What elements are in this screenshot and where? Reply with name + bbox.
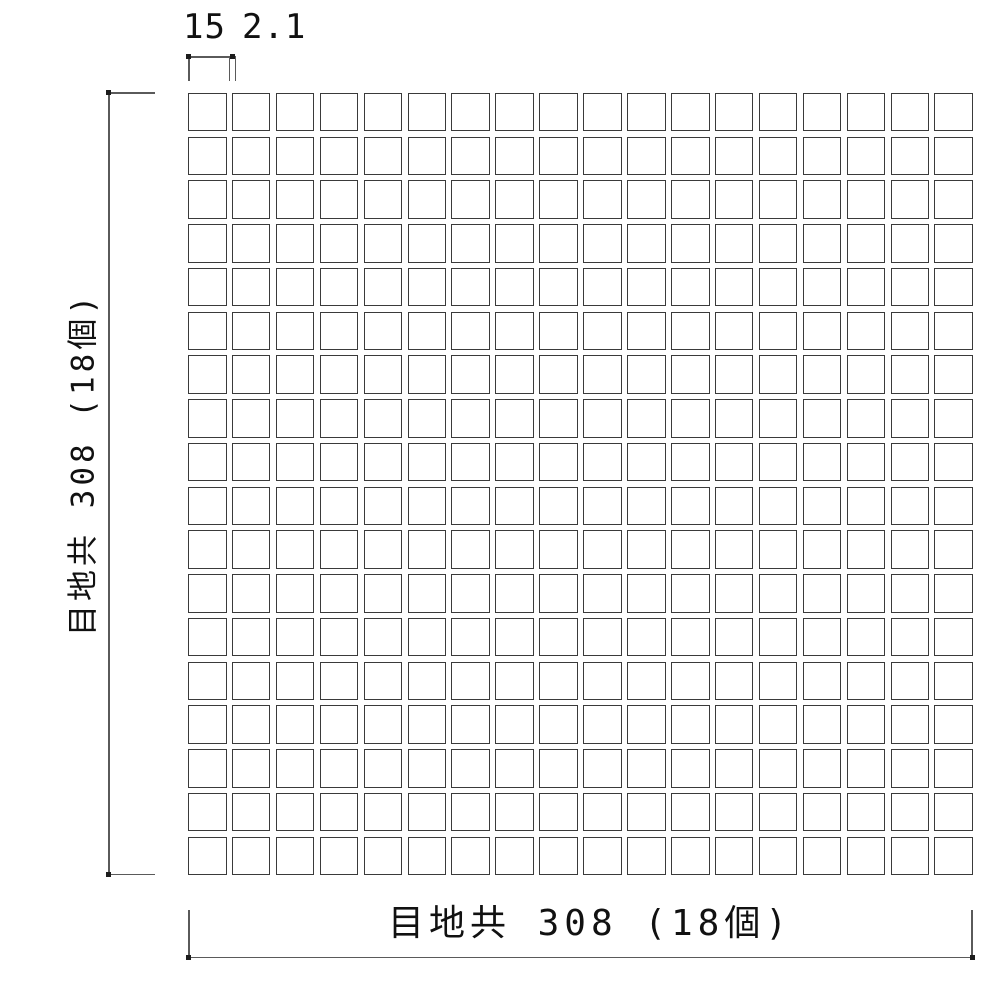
tile xyxy=(627,705,666,743)
tile xyxy=(627,180,666,218)
tile xyxy=(583,443,622,481)
tile xyxy=(847,705,886,743)
tile xyxy=(276,705,315,743)
tile xyxy=(803,574,842,612)
tile xyxy=(495,443,534,481)
tile xyxy=(759,530,798,568)
tile xyxy=(671,224,710,262)
tile xyxy=(364,837,403,875)
tile xyxy=(451,268,490,306)
tile xyxy=(539,268,578,306)
tile xyxy=(276,574,315,612)
tile xyxy=(715,399,754,437)
tile xyxy=(803,224,842,262)
tile xyxy=(891,399,930,437)
tile xyxy=(715,355,754,393)
tile xyxy=(188,618,227,656)
tile xyxy=(539,793,578,831)
tile xyxy=(276,618,315,656)
tile xyxy=(232,312,271,350)
tile xyxy=(934,180,973,218)
tile xyxy=(671,399,710,437)
left-dimension-line xyxy=(108,92,110,875)
tile xyxy=(495,662,534,700)
top-dimension-endpoint-dot-right xyxy=(230,54,235,59)
tile xyxy=(715,793,754,831)
tile xyxy=(934,443,973,481)
tile xyxy=(320,355,359,393)
tile xyxy=(671,749,710,787)
tile xyxy=(934,224,973,262)
tile xyxy=(803,705,842,743)
left-dimension-tick-top xyxy=(108,92,155,94)
tile xyxy=(583,137,622,175)
tile xyxy=(803,662,842,700)
tile xyxy=(715,530,754,568)
tile xyxy=(715,749,754,787)
tile xyxy=(671,793,710,831)
tile xyxy=(276,749,315,787)
tile xyxy=(364,137,403,175)
tile xyxy=(408,137,447,175)
tile xyxy=(759,705,798,743)
tile xyxy=(627,355,666,393)
tile xyxy=(495,574,534,612)
tile xyxy=(408,93,447,131)
tile xyxy=(627,443,666,481)
tile xyxy=(495,487,534,525)
tile xyxy=(232,180,271,218)
tile xyxy=(891,268,930,306)
tile xyxy=(891,837,930,875)
tile xyxy=(891,705,930,743)
tile xyxy=(408,793,447,831)
tile xyxy=(495,224,534,262)
tile xyxy=(188,443,227,481)
tile xyxy=(891,93,930,131)
tile xyxy=(934,749,973,787)
tile xyxy=(671,618,710,656)
tile xyxy=(408,749,447,787)
tile xyxy=(891,224,930,262)
tile xyxy=(364,705,403,743)
tile xyxy=(495,93,534,131)
tile xyxy=(583,530,622,568)
tile xyxy=(759,662,798,700)
tile xyxy=(759,487,798,525)
tile xyxy=(671,137,710,175)
tile xyxy=(408,268,447,306)
tile xyxy=(891,749,930,787)
tile xyxy=(803,180,842,218)
tile xyxy=(759,574,798,612)
tile xyxy=(188,224,227,262)
tile xyxy=(451,399,490,437)
tile xyxy=(715,224,754,262)
tile xyxy=(847,312,886,350)
tile xyxy=(320,268,359,306)
tile xyxy=(934,618,973,656)
tile xyxy=(188,137,227,175)
tile xyxy=(627,574,666,612)
tile xyxy=(320,749,359,787)
tile xyxy=(408,399,447,437)
tile xyxy=(188,705,227,743)
tile xyxy=(495,618,534,656)
tile xyxy=(364,662,403,700)
tile xyxy=(451,312,490,350)
tile xyxy=(364,487,403,525)
tile xyxy=(539,399,578,437)
bottom-dimension-tick-right xyxy=(971,910,973,958)
tile xyxy=(364,93,403,131)
tile xyxy=(276,312,315,350)
tile xyxy=(320,487,359,525)
tile xyxy=(627,93,666,131)
tile xyxy=(276,662,315,700)
tile xyxy=(671,443,710,481)
tile xyxy=(671,180,710,218)
top-dimension-tick-left xyxy=(188,56,190,81)
tile xyxy=(408,662,447,700)
tile xyxy=(934,793,973,831)
tile xyxy=(715,618,754,656)
tile xyxy=(451,355,490,393)
tile xyxy=(934,837,973,875)
top-dimension-endpoint-dot-left xyxy=(186,54,191,59)
tile xyxy=(539,487,578,525)
tile xyxy=(495,312,534,350)
tile xyxy=(495,530,534,568)
tile xyxy=(364,574,403,612)
tile xyxy=(847,224,886,262)
tile xyxy=(320,137,359,175)
tile xyxy=(934,530,973,568)
tile xyxy=(539,618,578,656)
tile xyxy=(451,530,490,568)
tile xyxy=(364,793,403,831)
tile xyxy=(583,224,622,262)
tile xyxy=(451,180,490,218)
tile xyxy=(671,837,710,875)
tile xyxy=(891,793,930,831)
tile xyxy=(495,399,534,437)
tile xyxy=(583,268,622,306)
tile xyxy=(232,837,271,875)
tile xyxy=(891,443,930,481)
tile xyxy=(451,224,490,262)
tile xyxy=(451,837,490,875)
tile xyxy=(408,443,447,481)
tile xyxy=(320,618,359,656)
tile xyxy=(276,837,315,875)
tile xyxy=(495,268,534,306)
tile xyxy=(891,662,930,700)
tile xyxy=(539,574,578,612)
tile xyxy=(495,793,534,831)
tile xyxy=(934,355,973,393)
tile xyxy=(934,705,973,743)
tile xyxy=(364,180,403,218)
tile xyxy=(934,137,973,175)
tile xyxy=(847,268,886,306)
bottom-dimension-endpoint-dot-right xyxy=(970,955,975,960)
tile xyxy=(451,443,490,481)
tile xyxy=(539,705,578,743)
tile xyxy=(495,137,534,175)
tile xyxy=(232,487,271,525)
tile xyxy=(320,180,359,218)
joint-width-dimension-text: 2.1 xyxy=(242,10,306,44)
tile xyxy=(759,618,798,656)
tile xyxy=(847,399,886,437)
tile xyxy=(847,93,886,131)
tile xyxy=(232,355,271,393)
tile xyxy=(408,312,447,350)
tile xyxy=(891,618,930,656)
tile xyxy=(671,268,710,306)
tile xyxy=(451,662,490,700)
tile xyxy=(232,793,271,831)
tile xyxy=(232,224,271,262)
tile xyxy=(451,793,490,831)
tile xyxy=(364,224,403,262)
tile xyxy=(627,312,666,350)
tile xyxy=(934,574,973,612)
tile xyxy=(627,618,666,656)
tile xyxy=(364,443,403,481)
tile xyxy=(803,355,842,393)
tile xyxy=(627,530,666,568)
tile xyxy=(320,443,359,481)
tile xyxy=(539,662,578,700)
tile xyxy=(320,399,359,437)
tile xyxy=(847,574,886,612)
tile xyxy=(847,793,886,831)
tile xyxy=(847,487,886,525)
tile xyxy=(364,749,403,787)
tile xyxy=(759,93,798,131)
tile xyxy=(408,705,447,743)
tile xyxy=(320,705,359,743)
tile xyxy=(320,574,359,612)
top-dimension-labels: 15 2.1 xyxy=(183,10,306,44)
tile xyxy=(495,355,534,393)
tile xyxy=(759,793,798,831)
tile xyxy=(671,355,710,393)
tile xyxy=(232,137,271,175)
tile xyxy=(451,574,490,612)
tile xyxy=(188,749,227,787)
tile xyxy=(539,93,578,131)
tile xyxy=(671,574,710,612)
tile xyxy=(276,355,315,393)
tile xyxy=(276,224,315,262)
tile xyxy=(627,487,666,525)
tile xyxy=(364,618,403,656)
tile xyxy=(759,443,798,481)
bottom-dimension-line xyxy=(188,957,973,959)
tile xyxy=(451,137,490,175)
tile-grid xyxy=(188,93,973,875)
tile xyxy=(759,268,798,306)
tile xyxy=(539,137,578,175)
tile xyxy=(847,530,886,568)
tile xyxy=(364,312,403,350)
tile xyxy=(715,574,754,612)
left-dimension-text: 目地共 308 (18個) xyxy=(69,292,100,636)
tile xyxy=(759,224,798,262)
tile xyxy=(408,837,447,875)
tile xyxy=(627,837,666,875)
tile xyxy=(847,355,886,393)
tile xyxy=(803,137,842,175)
tile xyxy=(759,399,798,437)
tile xyxy=(627,224,666,262)
tile xyxy=(803,399,842,437)
tile xyxy=(759,137,798,175)
tile xyxy=(320,312,359,350)
tile xyxy=(715,93,754,131)
tile xyxy=(276,793,315,831)
tile xyxy=(583,705,622,743)
tile xyxy=(803,837,842,875)
tile xyxy=(320,93,359,131)
tile xyxy=(583,662,622,700)
tile xyxy=(715,443,754,481)
tile xyxy=(364,399,403,437)
tile xyxy=(495,749,534,787)
tile-width-dimension-text: 15 xyxy=(183,10,226,44)
tile xyxy=(188,93,227,131)
top-dimension-tick-joint-end xyxy=(235,56,237,81)
tile xyxy=(583,574,622,612)
tile xyxy=(276,487,315,525)
tile xyxy=(451,705,490,743)
tile xyxy=(495,837,534,875)
bottom-dimension-endpoint-dot-left xyxy=(186,955,191,960)
tile xyxy=(188,662,227,700)
tile xyxy=(188,399,227,437)
tile xyxy=(451,618,490,656)
tile xyxy=(276,137,315,175)
tile xyxy=(451,749,490,787)
tile xyxy=(583,180,622,218)
tile xyxy=(891,137,930,175)
tile xyxy=(188,312,227,350)
tile xyxy=(934,662,973,700)
tile xyxy=(847,180,886,218)
tile xyxy=(934,312,973,350)
tile xyxy=(715,705,754,743)
tile xyxy=(891,312,930,350)
tile xyxy=(715,312,754,350)
tile xyxy=(232,618,271,656)
tile xyxy=(364,355,403,393)
tile xyxy=(232,399,271,437)
tile xyxy=(276,530,315,568)
tile xyxy=(671,530,710,568)
tile xyxy=(847,137,886,175)
tile xyxy=(539,180,578,218)
tile xyxy=(803,268,842,306)
tile xyxy=(627,137,666,175)
tile xyxy=(759,355,798,393)
tile xyxy=(847,837,886,875)
tile xyxy=(320,793,359,831)
tile xyxy=(188,837,227,875)
tile xyxy=(671,662,710,700)
tile xyxy=(408,355,447,393)
tile xyxy=(495,705,534,743)
tile xyxy=(847,749,886,787)
tile xyxy=(320,662,359,700)
tile xyxy=(627,793,666,831)
tile xyxy=(276,443,315,481)
tile xyxy=(539,224,578,262)
tile xyxy=(276,93,315,131)
tile xyxy=(539,749,578,787)
tile xyxy=(276,399,315,437)
tile xyxy=(232,268,271,306)
bottom-dimension-text: 目地共 308 (18個) xyxy=(388,906,792,942)
tile xyxy=(583,487,622,525)
tile xyxy=(847,618,886,656)
tile xyxy=(671,705,710,743)
tile xyxy=(364,530,403,568)
tile xyxy=(232,574,271,612)
tile xyxy=(188,268,227,306)
tile xyxy=(627,399,666,437)
tile xyxy=(188,487,227,525)
tile xyxy=(715,137,754,175)
tile xyxy=(847,443,886,481)
tile xyxy=(495,180,534,218)
tile xyxy=(847,662,886,700)
bottom-dimension-tick-left xyxy=(188,910,190,958)
tile xyxy=(891,180,930,218)
tile xyxy=(934,93,973,131)
tile xyxy=(671,93,710,131)
tile xyxy=(934,399,973,437)
tile xyxy=(539,530,578,568)
tile xyxy=(803,93,842,131)
tile xyxy=(232,749,271,787)
tile xyxy=(320,837,359,875)
left-dimension-endpoint-dot-bottom xyxy=(106,872,111,877)
left-dimension-tick-bottom xyxy=(108,874,155,876)
tile xyxy=(408,530,447,568)
tile xyxy=(188,180,227,218)
tile xyxy=(934,268,973,306)
tile xyxy=(408,574,447,612)
tile xyxy=(188,574,227,612)
tile xyxy=(891,530,930,568)
tile xyxy=(715,487,754,525)
tile xyxy=(320,224,359,262)
tile xyxy=(759,312,798,350)
tile xyxy=(408,180,447,218)
tile xyxy=(583,399,622,437)
tile xyxy=(715,837,754,875)
tile xyxy=(671,312,710,350)
tile xyxy=(276,180,315,218)
tile xyxy=(320,530,359,568)
tile xyxy=(627,749,666,787)
tile xyxy=(891,487,930,525)
tile xyxy=(627,268,666,306)
tile xyxy=(759,749,798,787)
